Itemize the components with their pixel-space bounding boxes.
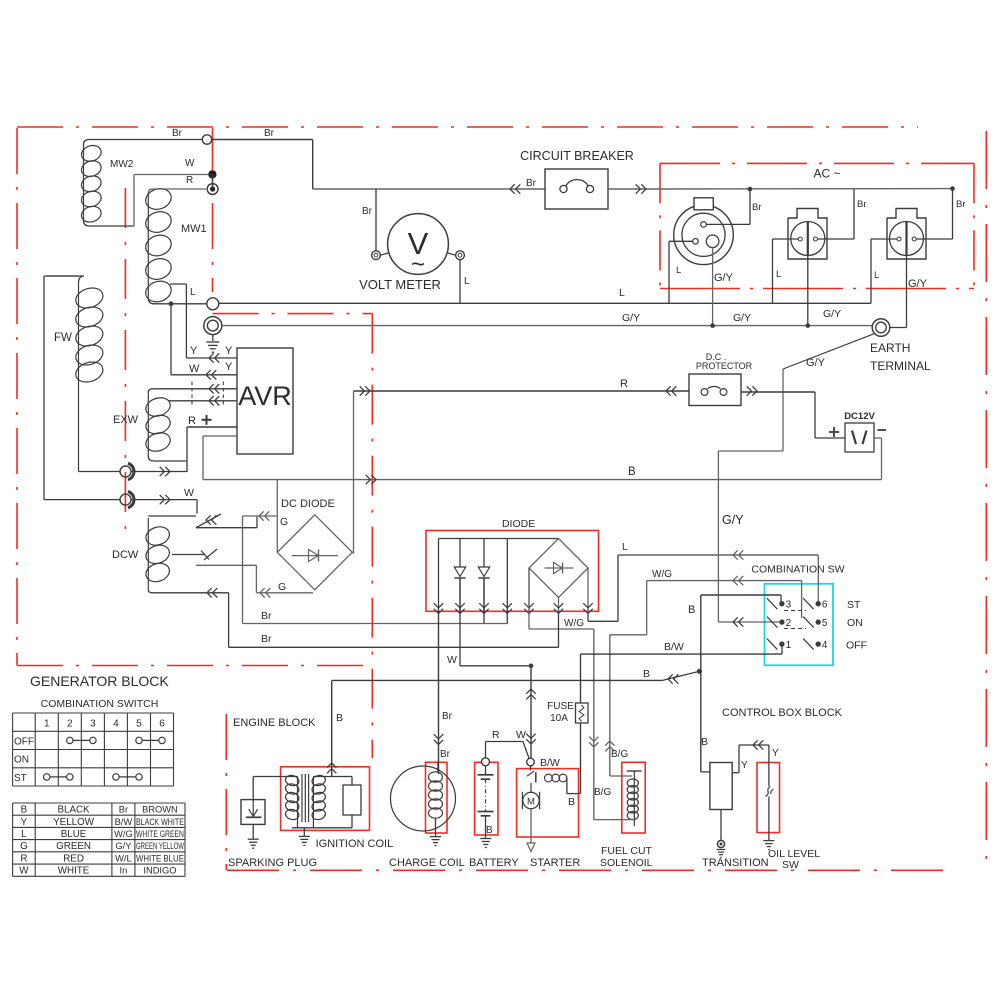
- svg-text:CHARGE COIL: CHARGE COIL: [389, 857, 465, 869]
- svg-text:G/Y: G/Y: [733, 312, 751, 324]
- svg-text:Br: Br: [119, 805, 128, 815]
- svg-text:G/Y: G/Y: [722, 513, 744, 527]
- svg-text:W/G: W/G: [564, 618, 584, 629]
- svg-text:W/G: W/G: [114, 829, 133, 839]
- svg-text:AC ~: AC ~: [813, 167, 840, 181]
- svg-text:Y: Y: [225, 345, 233, 357]
- svg-text:4: 4: [113, 719, 119, 730]
- svg-text:WHITE BLUE: WHITE BLUE: [136, 853, 184, 863]
- svg-text:B: B: [568, 796, 575, 808]
- svg-text:W: W: [184, 487, 194, 499]
- svg-text:L: L: [676, 265, 681, 276]
- svg-text:OFF: OFF: [846, 640, 867, 652]
- svg-text:STARTER: STARTER: [530, 857, 580, 869]
- svg-text:TERMINAL: TERMINAL: [870, 359, 931, 373]
- svg-text:TRANSITION: TRANSITION: [702, 857, 769, 869]
- svg-text:Br: Br: [752, 202, 762, 213]
- svg-text:ON: ON: [847, 617, 863, 629]
- svg-text:G: G: [280, 516, 288, 528]
- svg-text:3: 3: [786, 599, 792, 610]
- svg-text:W: W: [189, 363, 200, 375]
- svg-text:W: W: [516, 729, 526, 741]
- svg-text:EARTH: EARTH: [870, 341, 910, 355]
- svg-text:INDIGO: INDIGO: [143, 866, 176, 876]
- svg-text:L: L: [874, 270, 879, 281]
- svg-text:WHITE: WHITE: [58, 866, 90, 877]
- svg-text:SOLENOIL: SOLENOIL: [600, 857, 653, 869]
- svg-text:B/W: B/W: [540, 757, 560, 769]
- svg-text:G/Y: G/Y: [714, 272, 734, 284]
- svg-text:5: 5: [822, 618, 828, 629]
- svg-text:L: L: [190, 287, 196, 298]
- svg-text:PROTECTOR: PROTECTOR: [696, 361, 753, 371]
- svg-text:ST: ST: [14, 773, 27, 784]
- svg-text:R: R: [186, 175, 193, 186]
- svg-text:RED: RED: [63, 853, 84, 864]
- svg-text:Br: Br: [442, 711, 453, 722]
- svg-text:OFF: OFF: [14, 737, 34, 748]
- svg-text:MW2: MW2: [110, 159, 134, 170]
- svg-text:3: 3: [90, 719, 96, 730]
- svg-text:5: 5: [136, 719, 142, 730]
- svg-text:BROWN: BROWN: [142, 805, 178, 815]
- svg-text:2: 2: [786, 618, 792, 629]
- svg-text:W/G: W/G: [652, 569, 672, 580]
- svg-text:FUEL CUT: FUEL CUT: [601, 845, 653, 857]
- svg-text:Y: Y: [772, 748, 779, 759]
- svg-text:B: B: [21, 805, 28, 816]
- svg-text:DC12V: DC12V: [844, 411, 875, 422]
- svg-text:G/Y: G/Y: [823, 308, 841, 320]
- svg-text:1: 1: [786, 640, 792, 651]
- svg-text:R: R: [620, 378, 628, 390]
- svg-text:B: B: [628, 466, 636, 478]
- svg-text:DCW: DCW: [112, 549, 139, 561]
- svg-text:W: W: [447, 654, 457, 666]
- svg-text:1: 1: [44, 719, 50, 730]
- svg-text:Br: Br: [526, 178, 537, 189]
- svg-text:B: B: [701, 736, 708, 748]
- svg-text:G: G: [20, 841, 28, 852]
- svg-text:R: R: [20, 853, 27, 864]
- svg-text:B: B: [643, 668, 650, 680]
- svg-text:COMBINATION SWITCH: COMBINATION SWITCH: [41, 698, 159, 710]
- svg-text:Br: Br: [956, 199, 966, 210]
- svg-text:G/Y: G/Y: [806, 357, 826, 369]
- svg-text:GREEN YELLOW: GREEN YELLOW: [136, 841, 184, 851]
- svg-text:B: B: [486, 825, 493, 836]
- svg-text:Br: Br: [362, 206, 373, 217]
- svg-text:Y: Y: [21, 817, 28, 828]
- svg-text:Br: Br: [261, 633, 272, 645]
- svg-text:6: 6: [159, 719, 165, 730]
- svg-text:SW: SW: [782, 859, 799, 871]
- svg-text:G/Y: G/Y: [908, 278, 928, 290]
- svg-text:B: B: [688, 604, 695, 616]
- svg-text:L: L: [21, 829, 27, 840]
- svg-text:G/Y: G/Y: [622, 312, 640, 324]
- svg-text:B: B: [336, 712, 343, 724]
- svg-text:L: L: [622, 542, 628, 553]
- svg-text:2: 2: [67, 719, 73, 730]
- svg-text:Y: Y: [190, 345, 198, 357]
- svg-text:Y: Y: [741, 760, 748, 771]
- svg-text:4: 4: [822, 640, 828, 651]
- svg-text:B/G: B/G: [594, 787, 611, 798]
- svg-text:BLACK WHITE: BLACK WHITE: [136, 817, 184, 827]
- svg-text:G/Y: G/Y: [115, 841, 131, 851]
- svg-text:VOLT METER: VOLT METER: [359, 277, 441, 292]
- svg-text:FUSE: FUSE: [547, 701, 574, 712]
- svg-text:~: ~: [411, 251, 425, 278]
- svg-text:EXW: EXW: [113, 414, 139, 426]
- svg-text:10A: 10A: [550, 713, 568, 724]
- svg-text:G: G: [278, 581, 286, 593]
- svg-text:In: In: [120, 866, 128, 876]
- svg-text:L: L: [619, 287, 625, 299]
- svg-text:Y: Y: [225, 361, 233, 373]
- svg-text:W/L: W/L: [115, 853, 132, 863]
- svg-text:CIRCUIT BREAKER: CIRCUIT BREAKER: [520, 149, 634, 163]
- svg-text:M: M: [527, 796, 535, 807]
- svg-text:L: L: [464, 276, 470, 287]
- svg-text:Br: Br: [261, 610, 272, 622]
- svg-text:YELLOW: YELLOW: [53, 817, 95, 828]
- svg-text:Br: Br: [264, 128, 275, 139]
- svg-text:DIODE: DIODE: [502, 518, 535, 530]
- svg-text:6: 6: [822, 599, 828, 610]
- svg-text:BLUE: BLUE: [61, 829, 87, 840]
- svg-text:SPARKING PLUG: SPARKING PLUG: [228, 857, 317, 869]
- svg-text:FW: FW: [54, 332, 72, 344]
- svg-text:AVR: AVR: [238, 381, 292, 411]
- svg-text:Br: Br: [857, 199, 867, 210]
- svg-text:W: W: [185, 158, 195, 169]
- svg-text:L: L: [776, 269, 781, 280]
- svg-text:W: W: [19, 866, 29, 877]
- svg-text:BATTERY: BATTERY: [469, 857, 519, 869]
- svg-text:B/W: B/W: [115, 817, 133, 827]
- svg-text:B/G: B/G: [611, 749, 628, 760]
- svg-text:ST: ST: [847, 599, 861, 611]
- svg-text:B/W: B/W: [664, 641, 684, 653]
- svg-text:ENGINE BLOCK: ENGINE BLOCK: [233, 717, 316, 729]
- svg-text:CONTROL BOX BLOCK: CONTROL BOX BLOCK: [722, 707, 843, 719]
- svg-text:MW1: MW1: [181, 223, 207, 235]
- svg-text:Br: Br: [172, 128, 183, 139]
- svg-text:Br: Br: [440, 749, 451, 760]
- svg-text:BLACK: BLACK: [57, 805, 90, 816]
- svg-text:GREEN: GREEN: [56, 841, 91, 852]
- svg-text:GENERATOR BLOCK: GENERATOR BLOCK: [30, 673, 169, 689]
- svg-text:IGNITION COIL: IGNITION COIL: [316, 838, 394, 850]
- svg-text:R: R: [188, 415, 196, 427]
- svg-text:WHITE GREEN: WHITE GREEN: [136, 829, 184, 839]
- svg-text:DC DIODE: DC DIODE: [281, 498, 335, 510]
- svg-text:R: R: [492, 729, 500, 741]
- svg-text:ON: ON: [14, 755, 29, 766]
- svg-text:COMBINATION SW: COMBINATION SW: [751, 564, 844, 576]
